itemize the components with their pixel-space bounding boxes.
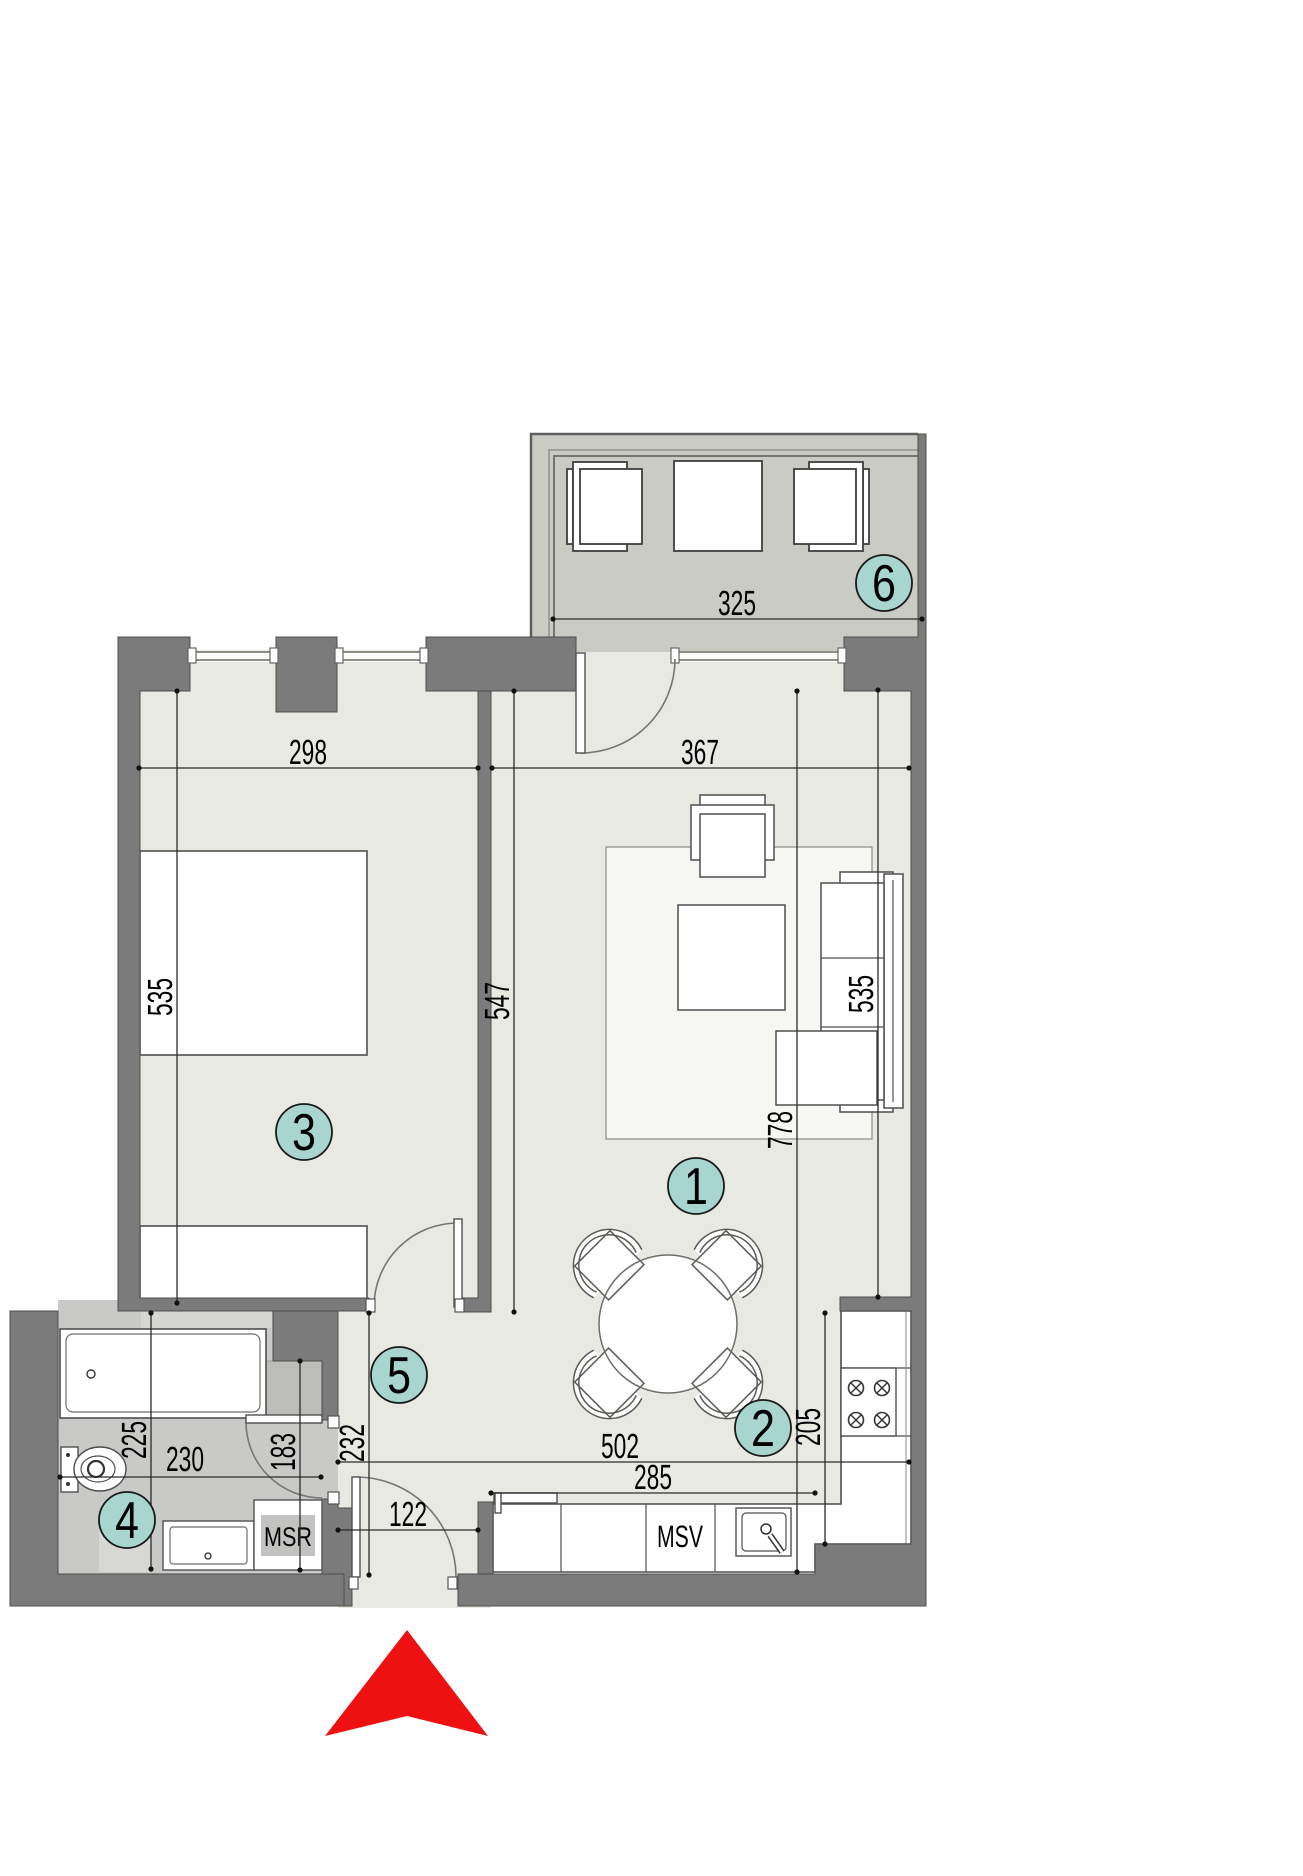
svg-text:778: 778 <box>761 1111 800 1149</box>
svg-text:535: 535 <box>842 975 881 1013</box>
svg-text:205: 205 <box>789 1408 828 1446</box>
svg-text:232: 232 <box>333 1424 372 1462</box>
svg-text:285: 285 <box>634 1458 672 1497</box>
svg-text:535: 535 <box>141 978 180 1016</box>
svg-text:298: 298 <box>289 733 327 772</box>
svg-text:MSR: MSR <box>264 1522 312 1552</box>
svg-text:225: 225 <box>115 1421 154 1459</box>
svg-text:547: 547 <box>478 982 517 1020</box>
svg-text:367: 367 <box>681 733 719 772</box>
svg-text:3: 3 <box>292 1104 316 1162</box>
svg-text:5: 5 <box>387 1347 411 1405</box>
svg-text:122: 122 <box>389 1495 427 1534</box>
svg-text:MSV: MSV <box>657 1519 703 1554</box>
svg-text:4: 4 <box>115 1492 139 1550</box>
svg-text:325: 325 <box>718 584 756 623</box>
svg-text:1: 1 <box>684 1158 708 1216</box>
svg-text:2: 2 <box>751 1400 775 1458</box>
svg-text:230: 230 <box>166 1440 204 1479</box>
svg-text:6: 6 <box>872 555 896 613</box>
svg-text:183: 183 <box>264 1433 303 1471</box>
